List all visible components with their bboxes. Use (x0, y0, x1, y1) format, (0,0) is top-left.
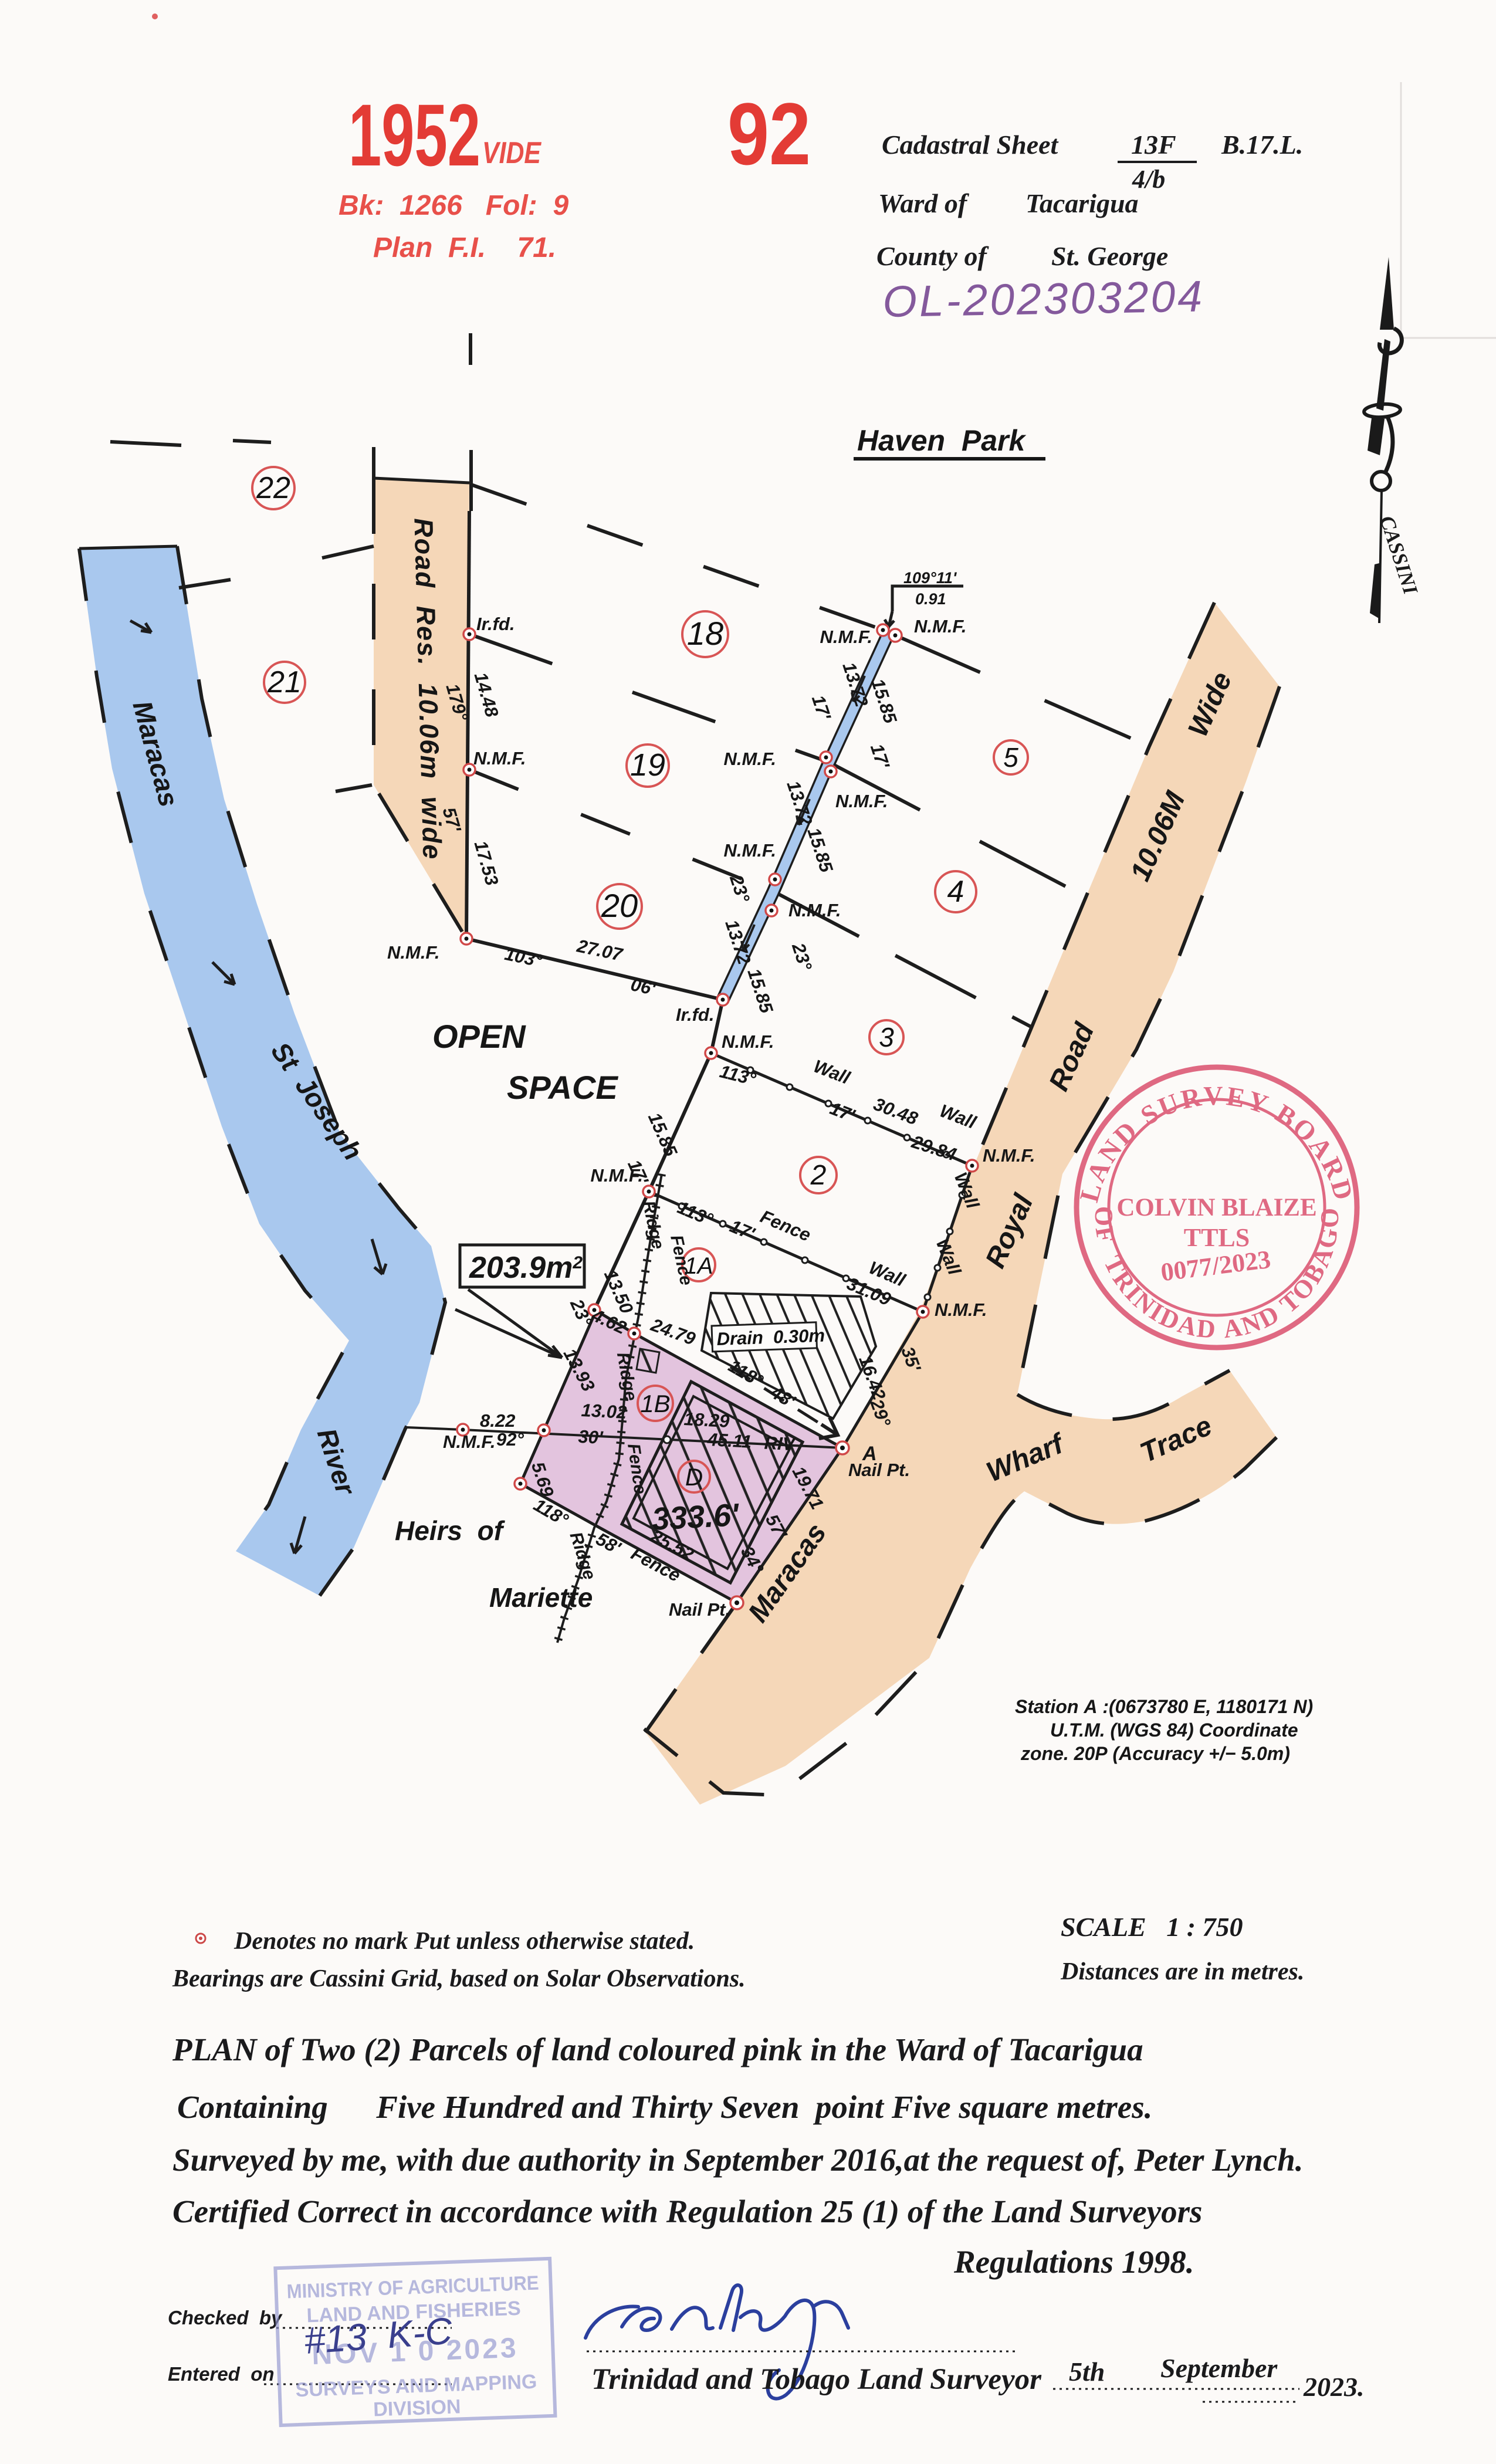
svg-text:13.02: 13.02 (581, 1400, 627, 1423)
svg-text:Drain 0.30m: Drain 0.30m (716, 1325, 825, 1349)
svg-text:1B: 1B (640, 1390, 670, 1417)
svg-text:OL-202303204: OL-202303204 (882, 271, 1205, 326)
svg-text:N.M.F.: N.M.F. (723, 749, 776, 769)
svg-text:OPEN: OPEN (432, 1018, 526, 1055)
svg-text:County of: County of (876, 241, 990, 271)
svg-text:2: 2 (810, 1160, 827, 1191)
svg-text:19: 19 (630, 747, 665, 783)
svg-text:1952: 1952 (348, 86, 480, 184)
svg-text:Bearings are Cassini Grid, bas: Bearings are Cassini Grid, based on Sola… (172, 1965, 746, 1992)
svg-text:333.6': 333.6' (651, 1497, 741, 1537)
svg-text:92°: 92° (496, 1429, 524, 1450)
svg-text:109°11': 109°11' (903, 569, 957, 587)
svg-text:September: September (1160, 2353, 1278, 2383)
svg-text:Containing Five Hundred a: Containing Five Hundred and Thirty Seven… (177, 2089, 1152, 2125)
svg-text:N.M.F.: N.M.F. (983, 1145, 1035, 1166)
svg-text:Station A :(0673780 E, 1180171: Station A :(0673780 E, 1180171 N) (1015, 1696, 1313, 1717)
svg-text:22: 22 (256, 471, 290, 505)
svg-text:3: 3 (879, 1022, 894, 1052)
svg-text:TTLS: TTLS (1184, 1223, 1250, 1252)
svg-text:Plan F.I. 71.: Plan F.I. 71. (373, 232, 556, 263)
svg-text:Ir.fd.: Ir.fd. (676, 1004, 714, 1025)
svg-text:Nail Pt.: Nail Pt. (848, 1460, 910, 1480)
svg-text:2023.: 2023. (1303, 2372, 1365, 2402)
svg-text:5th: 5th (1069, 2357, 1105, 2387)
svg-text:Bk: 1266 Fol: 9: Bk: 1266 Fol: 9 (339, 190, 568, 221)
svg-text:Entered on: Entered on (168, 2363, 275, 2385)
svg-text:Ir.fd.: Ir.fd. (476, 614, 515, 634)
svg-text:N.M.F.: N.M.F. (473, 748, 526, 769)
svg-text:Distances are in metres.: Distances are in metres. (1060, 1958, 1304, 1985)
svg-text:Certified Correct in accordanc: Certified Correct in accordance with Reg… (172, 2194, 1202, 2229)
svg-text:St. George: St. George (1051, 241, 1168, 271)
svg-text:Nail Pt.: Nail Pt. (669, 1599, 730, 1620)
svg-text:N.M.F.: N.M.F. (387, 942, 440, 963)
svg-text:SPACE: SPACE (507, 1069, 618, 1106)
svg-text:Tacarigua: Tacarigua (1025, 188, 1139, 218)
svg-text:N.M.F.: N.M.F. (443, 1431, 496, 1452)
svg-text:N.M.F.: N.M.F. (722, 1031, 774, 1052)
svg-text:8.22: 8.22 (480, 1410, 515, 1431)
svg-text:20: 20 (601, 887, 638, 924)
svg-text:Ward of: Ward of (878, 188, 970, 218)
svg-text:VIDE: VIDE (482, 136, 541, 170)
svg-text:45.11: 45.11 (706, 1429, 752, 1452)
svg-text:Surveyed by me, with due autho: Surveyed by me, with due authority in Se… (172, 2142, 1303, 2178)
svg-text:13F: 13F (1131, 130, 1176, 160)
svg-text:N.M.F.: N.M.F. (820, 627, 872, 647)
svg-text:4: 4 (947, 875, 964, 909)
svg-text:Mariette: Mariette (489, 1582, 593, 1613)
svg-text:PLAN of Two (2) Parcels of lan: PLAN of Two (2) Parcels of land coloured… (172, 2032, 1143, 2067)
svg-text:N.M.F.: N.M.F. (835, 791, 888, 811)
svg-text:Checked by: Checked by (168, 2307, 283, 2328)
svg-text:zone. 20P (Accuracy +/− 5.0m): zone. 20P (Accuracy +/− 5.0m) (1020, 1743, 1290, 1764)
svg-text:RIV: RIV (764, 1433, 797, 1455)
svg-text:U.T.M. (WGS 84) Coordinate: U.T.M. (WGS 84) Coordinate (1050, 1720, 1298, 1741)
svg-text:D: D (685, 1463, 703, 1491)
svg-text:COLVIN BLAIZE: COLVIN BLAIZE (1116, 1194, 1316, 1221)
svg-text:SCALE 1 : 750: SCALE 1 : 750 (1061, 1912, 1243, 1942)
svg-text:B.17.L.: B.17.L. (1221, 130, 1303, 160)
svg-text:18.29: 18.29 (683, 1409, 730, 1431)
svg-text:N.M.F.: N.M.F. (788, 900, 841, 920)
svg-text:N.M.F.: N.M.F. (935, 1299, 987, 1320)
svg-text:18: 18 (687, 615, 723, 652)
svg-text:92: 92 (727, 84, 811, 183)
svg-text:0.91: 0.91 (915, 590, 946, 608)
svg-text:Haven Park: Haven Park (857, 424, 1026, 457)
svg-text:5: 5 (1003, 742, 1018, 773)
svg-text:203.9m2: 203.9m2 (469, 1251, 583, 1285)
svg-text:DIVISION: DIVISION (373, 2395, 461, 2421)
svg-text:21: 21 (267, 665, 302, 699)
svg-text:N.M.F.: N.M.F. (914, 616, 967, 637)
svg-text:Trinidad and Tobago Land Surve: Trinidad and Tobago Land Surveyor (591, 2363, 1042, 2396)
svg-text:Denotes no mark Put unless oth: Denotes no mark Put unless otherwise sta… (233, 1928, 695, 1955)
svg-text:Heirs of: Heirs of (395, 1515, 506, 1546)
svg-text:Cadastral Sheet: Cadastral Sheet (882, 130, 1059, 160)
svg-text:N.M.F.: N.M.F. (723, 840, 776, 861)
svg-text:30': 30' (578, 1426, 604, 1448)
svg-text:Regulations 1998.: Regulations 1998. (953, 2244, 1194, 2280)
